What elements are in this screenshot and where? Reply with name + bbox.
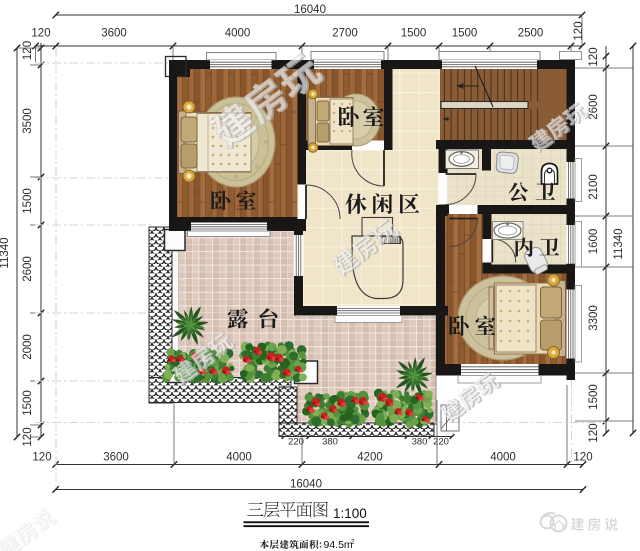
svg-text:4000: 4000 [225,28,251,40]
svg-text:2600: 2600 [588,94,600,120]
svg-text:4000: 4000 [226,452,252,464]
svg-text:1500: 1500 [22,390,34,416]
svg-text:3600: 3600 [103,452,129,464]
svg-text:94.5m: 94.5m [324,539,353,551]
svg-text:1500: 1500 [452,28,478,40]
svg-text:2500: 2500 [518,28,544,40]
svg-text:1500: 1500 [401,28,427,40]
svg-text:16040: 16040 [290,479,322,491]
svg-text:220: 220 [433,437,449,448]
svg-text:3500: 3500 [22,108,34,134]
svg-text:1500: 1500 [22,188,34,214]
svg-text:2000: 2000 [22,334,34,360]
svg-text:11340: 11340 [0,237,11,268]
svg-text:120: 120 [22,41,34,60]
svg-text:220: 220 [288,437,304,448]
svg-text:120: 120 [573,452,592,464]
svg-text:120: 120 [31,28,50,40]
svg-text:3600: 3600 [101,28,127,40]
svg-text:120: 120 [588,47,600,66]
svg-text:2100: 2100 [588,174,600,200]
svg-text:16040: 16040 [294,4,326,16]
svg-text:11340: 11340 [613,228,625,259]
svg-text:120: 120 [573,21,585,40]
svg-text:380: 380 [322,437,338,448]
svg-text:4000: 4000 [490,452,516,464]
svg-text::: : [319,540,322,551]
svg-text:1:100: 1:100 [333,506,367,521]
svg-text:2: 2 [351,539,355,546]
svg-text:2600: 2600 [22,256,34,282]
svg-text:3300: 3300 [588,305,600,331]
svg-text:1500: 1500 [588,384,600,410]
svg-text:120: 120 [588,423,600,442]
svg-text:4200: 4200 [357,452,383,464]
svg-text:2700: 2700 [332,28,358,40]
svg-text:120: 120 [32,452,51,464]
svg-text:380: 380 [412,437,428,448]
svg-text:1600: 1600 [588,229,600,255]
